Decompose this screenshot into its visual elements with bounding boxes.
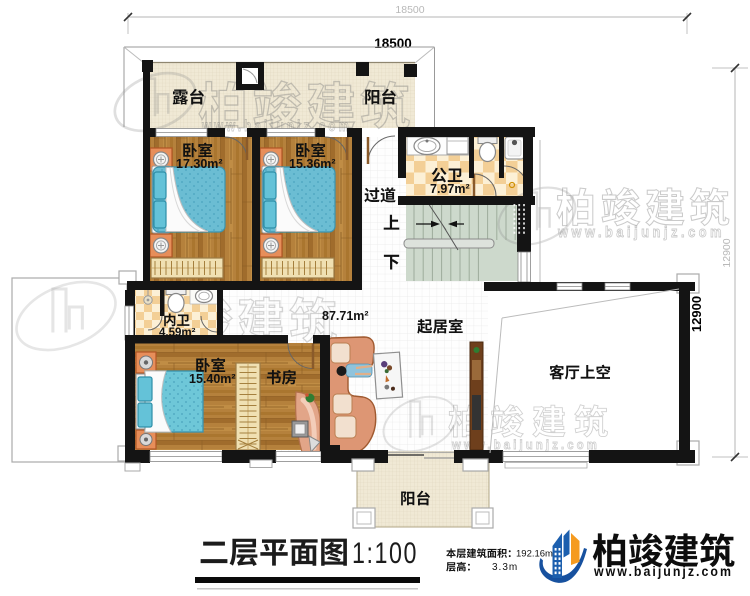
svg-text:192.16m²: 192.16m² <box>516 549 556 560</box>
svg-text:4.59m²: 4.59m² <box>159 327 196 339</box>
svg-text:3.3m: 3.3m <box>492 562 518 573</box>
svg-text:www.baijunjz.com: www.baijunjz.com <box>557 224 725 241</box>
svg-text:12900: 12900 <box>721 238 733 267</box>
svg-text:18500: 18500 <box>395 4 424 16</box>
svg-text:17.30m²: 17.30m² <box>176 157 223 171</box>
svg-text:12900: 12900 <box>689 296 704 332</box>
svg-text:7.97m²: 7.97m² <box>430 182 470 196</box>
svg-text:www.baijunjz.com: www.baijunjz.com <box>593 564 733 579</box>
svg-text:15.40m²: 15.40m² <box>189 372 236 386</box>
svg-text:15.36m²: 15.36m² <box>289 157 336 171</box>
svg-text:18500: 18500 <box>374 36 412 51</box>
svg-text:87.71m²: 87.71m² <box>322 309 369 323</box>
svg-text:1:100: 1:100 <box>352 537 418 570</box>
